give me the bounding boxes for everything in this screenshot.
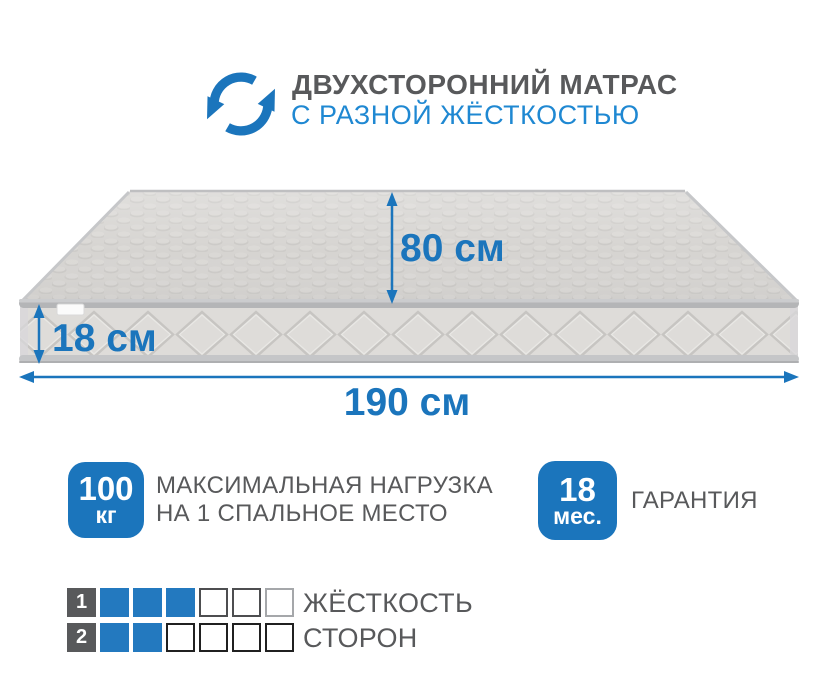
max-load-badge: 100 кг [68,462,144,538]
rating-cell-empty [265,623,294,652]
warranty-feature: 18 мес. ГАРАНТИЯ [538,461,758,540]
max-load-label: МАКСИМАЛЬНАЯ НАГРУЗКА НА 1 СПАЛЬНОЕ МЕСТ… [156,472,493,528]
rating-cell-filled [100,623,129,652]
max-load-feature: 100 кг МАКСИМАЛЬНАЯ НАГРУЗКА НА 1 СПАЛЬН… [68,462,493,538]
firmness-row-side2: 2 [67,623,294,652]
rating-cell-empty [166,623,195,652]
firmness-title-line1: ЖЁСТКОСТЬ [303,589,473,618]
rating-cell-filled [100,588,129,617]
warranty-value: 18 [559,474,596,505]
row-number-cell: 2 [67,623,96,652]
thickness-dimension-label: 18 см [52,319,157,358]
fabric-tag [57,304,84,315]
row-number-cell: 1 [67,588,96,617]
rating-cell-filled [166,588,195,617]
warranty-label: ГАРАНТИЯ [631,487,758,515]
rating-cell-empty [232,623,261,652]
width-dimension-label: 80 см [400,229,505,268]
rating-cell-filled [133,588,162,617]
firmness-row-side1: 1 [67,588,294,617]
firmness-title-line2: СТОРОН [303,624,418,653]
firmness-scale: 1 2 [67,588,294,658]
max-load-label-line2: НА 1 СПАЛЬНОЕ МЕСТО [156,500,493,528]
max-load-unit: кг [95,504,116,527]
rating-cell-empty [199,588,228,617]
warranty-unit: мес. [553,505,602,528]
rating-cell-empty [265,588,294,617]
infographic-canvas: ДВУХСТОРОННИЙ МАТРАС С РАЗНОЙ ЖЁСТКОСТЬЮ [0,0,816,700]
max-load-value: 100 [78,473,133,504]
rating-cell-filled [133,623,162,652]
rating-cell-empty [199,623,228,652]
max-load-label-line1: МАКСИМАЛЬНАЯ НАГРУЗКА [156,472,493,500]
length-dimension-label: 190 см [307,383,507,422]
rating-cell-empty [232,588,261,617]
warranty-label-line1: ГАРАНТИЯ [631,487,758,515]
warranty-badge: 18 мес. [538,461,617,540]
